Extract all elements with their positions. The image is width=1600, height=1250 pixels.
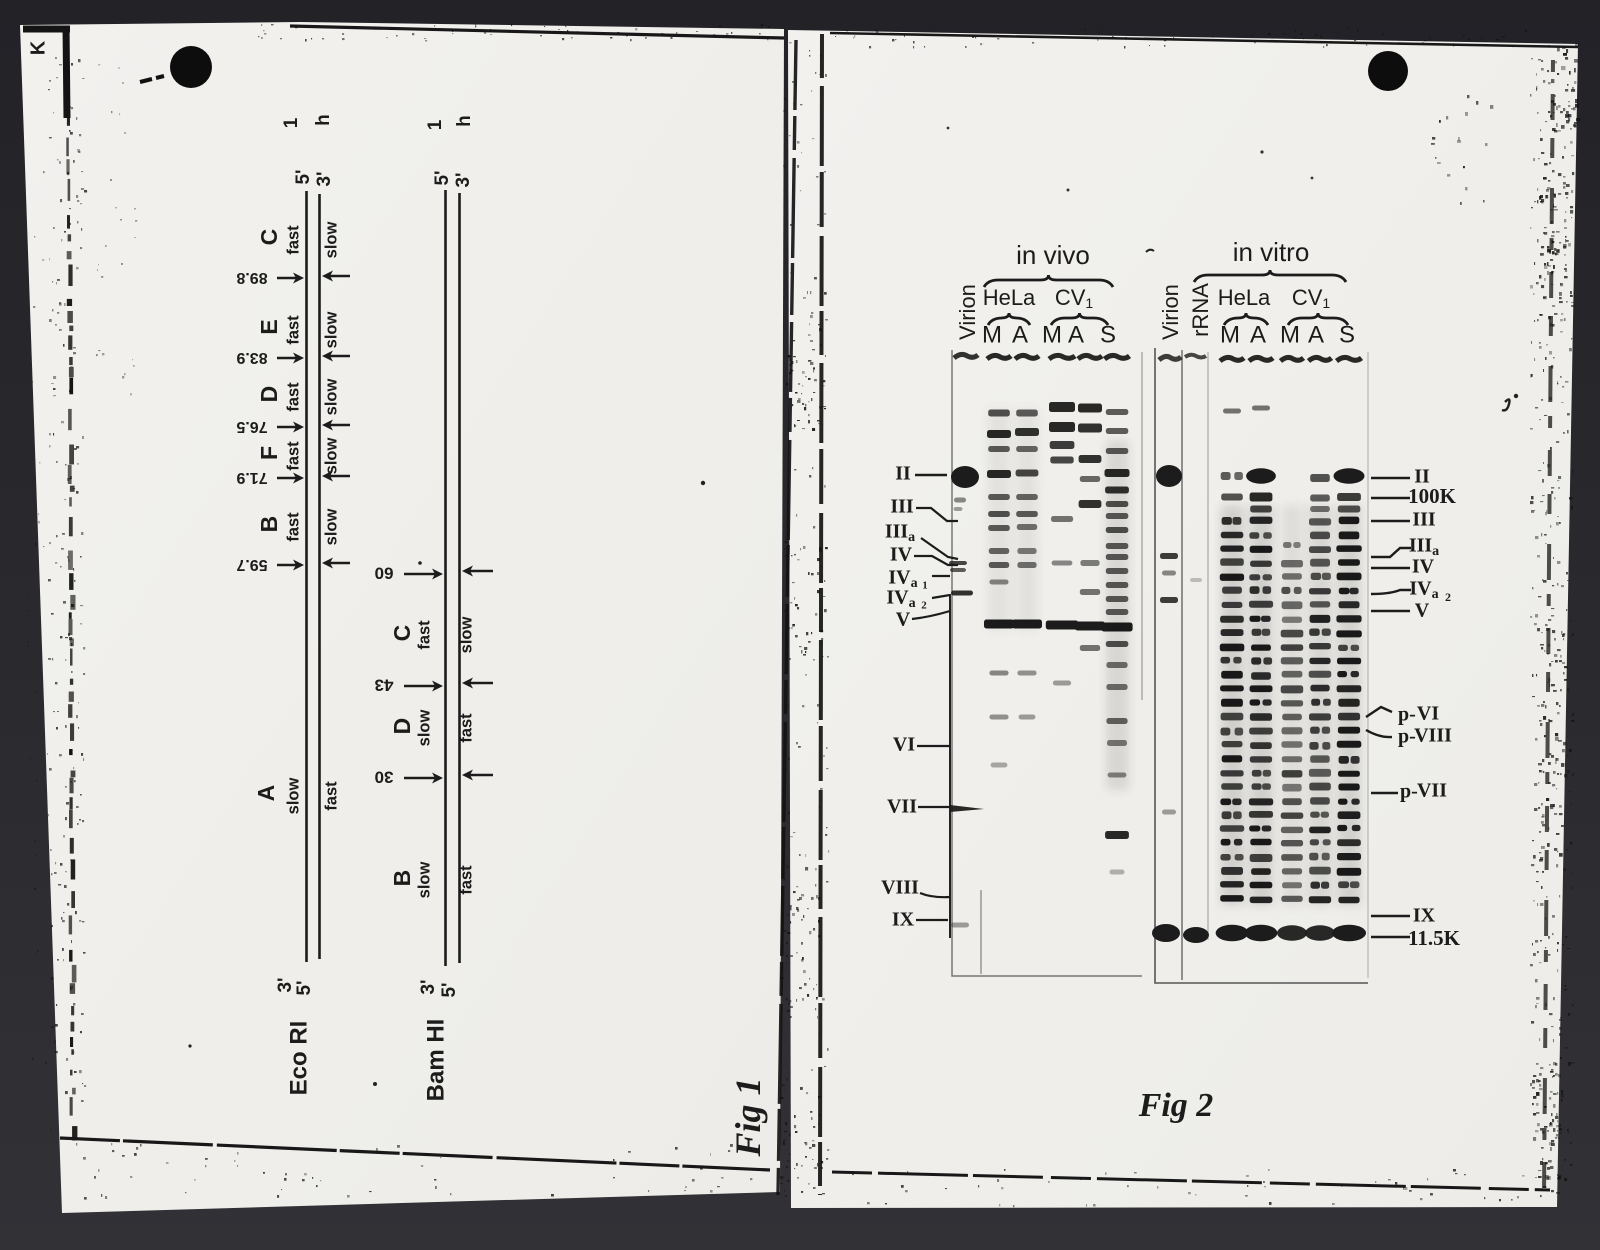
- svg-text:D: D: [256, 386, 282, 403]
- svg-text:IV: IV: [1412, 556, 1435, 578]
- svg-text:B: B: [256, 516, 282, 533]
- svg-text:VI: VI: [1417, 703, 1439, 725]
- svg-text:p-: p-: [1398, 704, 1416, 726]
- svg-text:Fig 2: Fig 2: [1138, 1087, 1214, 1124]
- svg-text:slow: slow: [322, 222, 340, 259]
- svg-text:M: M: [982, 321, 1002, 348]
- svg-text:rRNA: rRNA: [1188, 283, 1213, 337]
- svg-text:60: 60: [375, 564, 394, 583]
- svg-text:A: A: [1250, 321, 1266, 348]
- svg-text:fast: fast: [415, 620, 433, 650]
- svg-text:3': 3': [275, 977, 296, 992]
- svg-text:A: A: [253, 785, 279, 802]
- svg-text:h: h: [454, 115, 475, 127]
- svg-text:fast: fast: [284, 225, 302, 255]
- svg-text:fast: fast: [284, 441, 302, 471]
- svg-text:76.5: 76.5: [236, 418, 267, 435]
- svg-text:M: M: [1220, 321, 1240, 348]
- svg-text:slow: slow: [322, 379, 340, 416]
- svg-text:HeLa: HeLa: [983, 285, 1036, 310]
- svg-text:Virion: Virion: [955, 284, 980, 340]
- svg-text:S: S: [1339, 321, 1355, 348]
- svg-text:slow: slow: [457, 617, 475, 654]
- svg-text:fast: fast: [284, 315, 302, 345]
- svg-text:59.7: 59.7: [236, 556, 267, 573]
- svg-text:89.8: 89.8: [236, 269, 267, 286]
- svg-text:S: S: [1100, 321, 1116, 348]
- svg-text:5': 5': [439, 982, 460, 997]
- svg-text:slow: slow: [415, 710, 433, 747]
- svg-text:IV: IV: [890, 544, 913, 566]
- svg-text:fast: fast: [284, 382, 302, 412]
- svg-text:VI: VI: [893, 734, 915, 756]
- svg-text:100K: 100K: [1408, 484, 1457, 508]
- svg-text:slow: slow: [415, 862, 433, 899]
- svg-text:IX: IX: [892, 909, 915, 931]
- svg-text:HeLa: HeLa: [1218, 285, 1271, 310]
- svg-text:C: C: [256, 229, 282, 246]
- svg-text:VII: VII: [887, 796, 917, 818]
- svg-text:3': 3': [453, 172, 474, 187]
- svg-text:3': 3': [314, 171, 335, 186]
- svg-text:1: 1: [425, 119, 446, 130]
- svg-text:in vivo: in vivo: [1016, 240, 1090, 270]
- svg-text:IX: IX: [1413, 905, 1436, 927]
- svg-text:slow: slow: [322, 438, 340, 475]
- svg-text:B: B: [389, 870, 415, 887]
- svg-text:K: K: [27, 40, 49, 55]
- svg-text:C: C: [389, 625, 415, 642]
- svg-text:A: A: [1308, 321, 1324, 348]
- svg-text:2: 2: [921, 600, 927, 612]
- svg-text:V: V: [1415, 600, 1430, 622]
- svg-text:fast: fast: [284, 512, 302, 542]
- svg-text:in vitro: in vitro: [1233, 237, 1310, 267]
- svg-text:Eco RI: Eco RI: [285, 1021, 312, 1096]
- svg-text:Fig 1: Fig 1: [728, 1077, 768, 1157]
- svg-text:A: A: [1012, 321, 1028, 348]
- svg-text:slow: slow: [284, 778, 302, 815]
- svg-text:II: II: [895, 463, 911, 485]
- svg-text:43: 43: [375, 676, 394, 695]
- svg-text:5': 5': [293, 169, 314, 184]
- svg-text:M: M: [1280, 321, 1300, 348]
- svg-text:Bam HI: Bam HI: [422, 1019, 449, 1102]
- svg-text:1: 1: [281, 117, 302, 128]
- svg-text:5': 5': [432, 170, 453, 185]
- svg-text:30: 30: [375, 768, 394, 787]
- svg-text:F: F: [256, 446, 282, 460]
- svg-text:fast: fast: [322, 781, 340, 811]
- svg-text:fast: fast: [457, 865, 475, 895]
- svg-text:fast: fast: [457, 713, 475, 743]
- svg-text:E: E: [256, 319, 282, 334]
- svg-text:slow: slow: [322, 509, 340, 546]
- svg-text:Virion: Virion: [1158, 284, 1183, 340]
- svg-text:III: III: [890, 496, 914, 518]
- svg-text:V: V: [896, 609, 911, 631]
- svg-text:VIII: VIII: [1414, 725, 1452, 747]
- svg-text:III: III: [1412, 509, 1436, 531]
- svg-text:D: D: [389, 718, 415, 735]
- svg-text:h: h: [313, 114, 334, 126]
- svg-text:83.9: 83.9: [236, 349, 267, 366]
- svg-text:1: 1: [922, 580, 928, 592]
- svg-text:2: 2: [1445, 590, 1451, 604]
- svg-text:M: M: [1042, 321, 1062, 348]
- svg-text:5': 5': [294, 980, 315, 995]
- svg-text:VII: VII: [1417, 780, 1447, 802]
- svg-text:11.5K: 11.5K: [1408, 926, 1461, 950]
- svg-text:p-: p-: [1400, 781, 1418, 803]
- svg-text:A: A: [1068, 321, 1084, 348]
- svg-text:slow: slow: [322, 312, 340, 349]
- svg-text:3': 3': [418, 979, 439, 994]
- svg-text:VIII: VIII: [881, 877, 919, 899]
- svg-text:71.9: 71.9: [236, 469, 267, 486]
